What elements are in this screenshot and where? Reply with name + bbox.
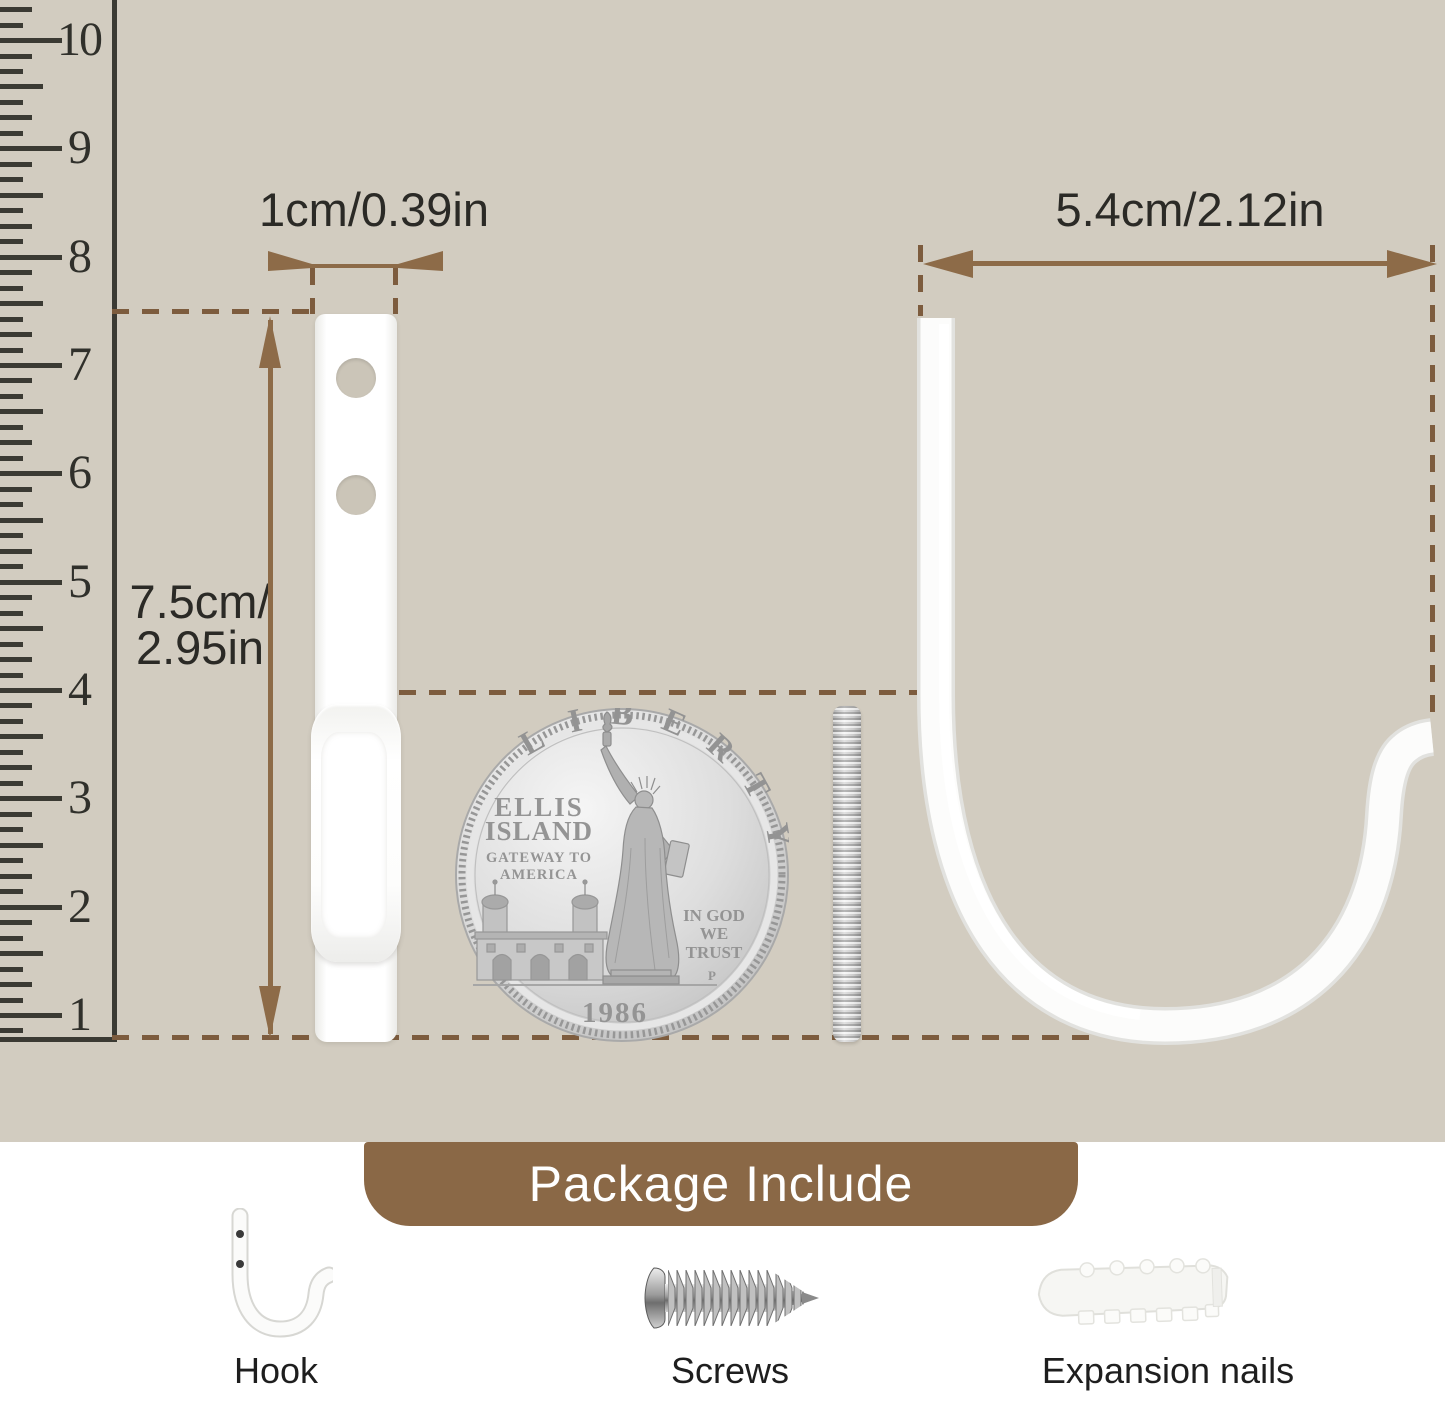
ruler-tick — [0, 193, 43, 198]
ruler-tick — [0, 84, 43, 89]
package-expansion-nails-label: Expansion nails — [1018, 1350, 1318, 1392]
ruler-tick — [0, 549, 32, 554]
ruler-tick — [0, 69, 23, 74]
coin-edge-view — [833, 706, 861, 1042]
coin-text-island: ISLAND — [485, 816, 593, 846]
ruler-tick — [0, 843, 43, 848]
coin-text-america: AMERICA — [500, 867, 578, 883]
ruler-number: 7 — [52, 338, 106, 392]
package-hook-label: Hook — [176, 1350, 376, 1392]
ruler-tick — [0, 239, 23, 244]
ruler-tick — [0, 502, 23, 507]
ruler-number: 4 — [52, 663, 106, 717]
ruler-number: 6 — [52, 446, 106, 500]
coin-text-we: WE — [700, 924, 728, 943]
ruler-tick — [0, 487, 32, 492]
ruler-tick — [0, 378, 32, 383]
ruler-number: 8 — [52, 230, 106, 284]
package-include-title: Package Include — [529, 1155, 914, 1213]
ruler-tick — [0, 456, 23, 461]
ruler-tick — [0, 827, 23, 832]
coin-text-trust: TRUST — [686, 943, 743, 962]
ruler-tick — [0, 595, 32, 600]
ruler-tick — [0, 332, 32, 337]
ruler-tick — [0, 781, 23, 786]
ruler-tick — [0, 998, 23, 1003]
package-screw-icon — [640, 1262, 820, 1334]
ruler-tick — [0, 425, 23, 430]
ruler-tick — [0, 317, 23, 322]
ruler-tick — [0, 533, 23, 538]
ruler-tick — [0, 920, 32, 925]
ruler-tick — [0, 301, 43, 306]
ruler-tick — [0, 518, 43, 523]
ruler-tick — [0, 348, 23, 353]
ruler-tick — [0, 1028, 23, 1033]
depth-arrow-icon — [915, 248, 1445, 282]
depth-dimension-label: 5.4cm/2.12in — [1000, 182, 1380, 237]
ruler-tick — [0, 409, 43, 414]
package-hook-icon — [218, 1208, 333, 1348]
coin-mint-mark: P — [708, 968, 716, 983]
ruler: 12345678910 — [0, 0, 117, 1042]
ruler-tick — [0, 177, 23, 182]
package-include-banner: Package Include — [364, 1142, 1078, 1226]
ruler-number: 1 — [52, 988, 106, 1042]
package-screws-label: Screws — [630, 1350, 830, 1392]
ruler-tick — [0, 719, 23, 724]
hook-side-view — [900, 310, 1445, 1055]
ruler-tick — [0, 858, 23, 863]
ruler-tick — [0, 982, 32, 987]
ruler-number: 9 — [52, 121, 106, 175]
ruler-tick — [0, 626, 43, 631]
hook-screw-hole-top — [336, 358, 376, 398]
hook-front-view — [315, 314, 397, 1042]
ruler-tick — [0, 564, 23, 569]
coin-text-ingod: IN GOD — [683, 906, 745, 925]
package-expansion-nail-icon — [1029, 1249, 1254, 1345]
ruler-tick — [0, 131, 23, 136]
ruler-tick — [0, 162, 32, 167]
ruler-tick — [0, 224, 32, 229]
ruler-tick — [0, 673, 23, 678]
ruler-tick — [0, 657, 32, 662]
ruler-tick — [0, 703, 32, 708]
size-infographic: 12345678910 1cm/0.39in 5.4cm/2.12in 7.5c… — [0, 0, 1445, 1408]
coin-year: 1986 — [582, 997, 648, 1029]
ruler-tick — [0, 54, 32, 59]
ruler-tick — [0, 270, 32, 275]
ruler-tick — [0, 874, 32, 879]
ruler-tick — [0, 394, 23, 399]
ruler-number: 10 — [52, 13, 106, 67]
guide-dash-middle — [399, 690, 921, 695]
hook-front-lip — [311, 704, 401, 962]
ruler-tick — [0, 115, 32, 120]
height-arrow-icon — [250, 312, 290, 1042]
coin-text-gateway: GATEWAY TO — [486, 850, 592, 866]
ruler-tick — [0, 7, 32, 12]
ruler-tick — [0, 286, 23, 291]
hook-screw-hole-bottom — [336, 475, 376, 515]
ruler-tick — [0, 936, 23, 941]
ruler-tick — [0, 951, 43, 956]
width-arrow-icon — [255, 243, 455, 277]
ruler-tick — [0, 440, 32, 445]
ruler-tick — [0, 889, 23, 894]
ruler-tick — [0, 23, 23, 28]
ruler-tick — [0, 967, 23, 972]
ruler-number: 2 — [52, 880, 106, 934]
ruler-number: 3 — [52, 771, 106, 825]
ruler-tick — [0, 812, 32, 817]
ruler-tick — [0, 642, 23, 647]
ruler-tick — [0, 750, 23, 755]
ruler-tick — [0, 734, 43, 739]
liberty-coin: LIBERTY ELLIS ISLAND GATEWAY TO AMERICA … — [455, 708, 789, 1042]
ruler-tick — [0, 611, 23, 616]
width-dimension-label: 1cm/0.39in — [254, 182, 494, 237]
ruler-tick — [0, 208, 23, 213]
ruler-number: 5 — [52, 555, 106, 609]
ruler-tick — [0, 765, 32, 770]
ruler-tick — [0, 100, 23, 105]
